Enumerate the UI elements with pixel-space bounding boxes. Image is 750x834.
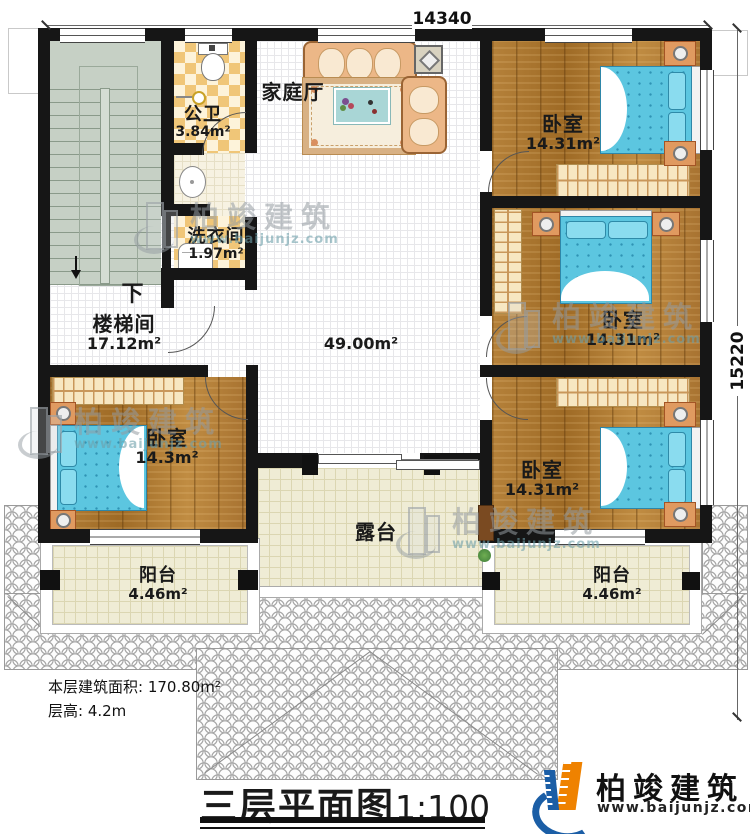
room-area: 14.31m² — [505, 481, 579, 499]
terrace-parapet — [252, 586, 490, 598]
wall-bedroom-left-top — [38, 365, 208, 377]
potted-plant — [478, 549, 491, 562]
room-name: 公卫 — [184, 105, 222, 125]
room-area: 14.31m² — [526, 135, 600, 153]
wall-laundry-bottom — [161, 268, 257, 280]
window — [60, 28, 145, 43]
stair-center-rail — [100, 88, 110, 284]
room-name: 卧室 — [521, 459, 563, 481]
wall-stair-stub — [161, 280, 174, 308]
room-label-bedroom-mid-right: 卧室 14.31m² — [583, 308, 663, 350]
toilet-tank-button — [209, 45, 215, 51]
window — [318, 28, 415, 43]
room-area: 14.31m² — [586, 331, 660, 349]
room-name: 楼梯间 — [93, 313, 156, 335]
bed-pillow — [668, 469, 686, 504]
room-label-balcony-left: 阳台 4.46m² — [122, 564, 194, 604]
balcony-post — [238, 570, 258, 590]
room-area: 17.12m² — [87, 335, 161, 353]
wall-bath-bottom — [168, 143, 204, 155]
nightstand — [532, 212, 560, 236]
flower-decor — [340, 105, 346, 111]
window — [700, 240, 714, 322]
room-area: 14.3m² — [135, 449, 198, 467]
balcony-post — [482, 572, 500, 590]
room-name: 露台 — [355, 521, 397, 543]
stair-down-label: 下 — [116, 281, 150, 309]
floor-height-note: 层高: 4.2m — [48, 700, 126, 721]
bed-pillow — [668, 72, 686, 110]
hall-area-label: 49.00m² — [322, 333, 400, 355]
side-table-diamond — [419, 50, 440, 71]
room-name: 阳台 — [593, 566, 631, 586]
brand-url: www.baijunjz.com — [597, 800, 750, 816]
room-name: 家庭厅 — [262, 81, 325, 103]
room-name: 洗衣间 — [188, 227, 245, 247]
wall — [645, 529, 712, 543]
window — [545, 28, 632, 43]
wall — [700, 28, 712, 70]
nightstand — [664, 502, 696, 527]
window — [700, 420, 714, 505]
wall-bed1-bed2 — [480, 196, 712, 208]
balcony-post — [40, 570, 60, 590]
corner-side-table — [414, 45, 443, 74]
nightstand — [652, 212, 680, 236]
wardrobe — [494, 209, 522, 314]
room-name: 卧室 — [146, 427, 188, 449]
title-underline-thin — [200, 827, 485, 829]
nightstand — [50, 510, 76, 531]
bed-pillow — [566, 221, 606, 239]
room-area: 49.00m² — [324, 335, 398, 353]
window — [555, 529, 645, 545]
room-area: 3.84m² — [175, 125, 230, 141]
eave-outline-top-left — [8, 28, 42, 94]
room-area: 1.97m² — [188, 247, 243, 263]
room-label-family-hall: 家庭厅 — [255, 80, 331, 104]
sliding-door-panel — [396, 460, 480, 470]
room-label-terrace: 露台 — [348, 518, 404, 546]
terrace-post — [302, 455, 318, 475]
rug-motif — [311, 139, 318, 146]
toilet-bowl — [201, 53, 225, 81]
sofa-cushion — [374, 48, 401, 80]
towel-ring — [192, 91, 206, 105]
room-area: 4.46m² — [582, 586, 641, 603]
coffee-table — [334, 88, 390, 124]
room-label-bedroom-bottom-right: 卧室 14.31m² — [502, 458, 582, 500]
wall — [38, 529, 90, 543]
eave-outline-top-right — [710, 30, 748, 76]
cup-decor — [368, 100, 373, 105]
floor-plan: 家庭厅 公卫 3.84m² 洗衣间 1.97m² 下 楼梯间 17.12m² 4… — [0, 0, 750, 834]
room-name: 阳台 — [139, 566, 177, 586]
brand-logo: 柏竣建筑 www.baijunjz.com — [516, 756, 746, 826]
wall-bedrooms-left — [480, 192, 492, 316]
room-label-public-bath: 公卫 3.84m² — [170, 104, 236, 142]
window — [90, 529, 200, 545]
window — [185, 28, 232, 43]
nightstand — [664, 402, 696, 427]
room-label-bedroom-left: 卧室 14.3m² — [127, 426, 207, 468]
nightstand — [664, 141, 696, 166]
wall-bedrooms-left — [480, 420, 492, 507]
balcony-door-leaf — [478, 505, 494, 541]
nightstand — [50, 402, 76, 425]
nightstand — [664, 41, 696, 66]
bed-pillow — [668, 432, 686, 467]
roof-center-block — [196, 648, 558, 780]
bed-pillow — [608, 221, 648, 239]
sofa-cushion — [409, 118, 439, 146]
sofa-cushion — [346, 48, 373, 80]
window — [700, 70, 714, 150]
cup-decor — [372, 109, 377, 114]
sink-drain — [190, 180, 194, 184]
balcony-post — [682, 572, 700, 590]
sofa-cushion — [318, 48, 345, 80]
wall-bed2-bed3 — [480, 365, 712, 377]
room-label-stairwell: 楼梯间 17.12m² — [78, 312, 170, 354]
wall — [38, 28, 50, 543]
floor-area-note: 本层建筑面积: 170.80m² — [48, 676, 221, 697]
room-label-balcony-right: 阳台 4.46m² — [576, 564, 648, 604]
wall-lobby-laundry — [168, 204, 210, 216]
bed-pillow — [60, 469, 77, 505]
stair-down-arrowhead — [71, 270, 81, 279]
room-label-bedroom-top-right: 卧室 14.31m² — [523, 112, 603, 154]
room-area: 4.46m² — [128, 586, 187, 603]
wall-bedrooms-left — [480, 40, 492, 151]
room-label-laundry: 洗衣间 1.97m² — [180, 226, 252, 264]
title-underline-thick — [200, 817, 485, 823]
wardrobe — [52, 377, 184, 405]
bed-pillow — [60, 431, 77, 467]
room-name: 卧室 — [602, 309, 644, 331]
room-name: 卧室 — [542, 113, 584, 135]
wardrobe — [556, 164, 690, 197]
wall — [700, 150, 712, 240]
sliding-door-panel — [318, 454, 402, 464]
sofa-two-seat — [401, 76, 447, 154]
sofa-cushion — [409, 86, 439, 114]
dimension-top: 14340 — [412, 9, 472, 29]
dimension-right: 15220 — [728, 326, 746, 396]
dimension-line-top — [46, 25, 710, 26]
flower-decor — [348, 103, 354, 109]
